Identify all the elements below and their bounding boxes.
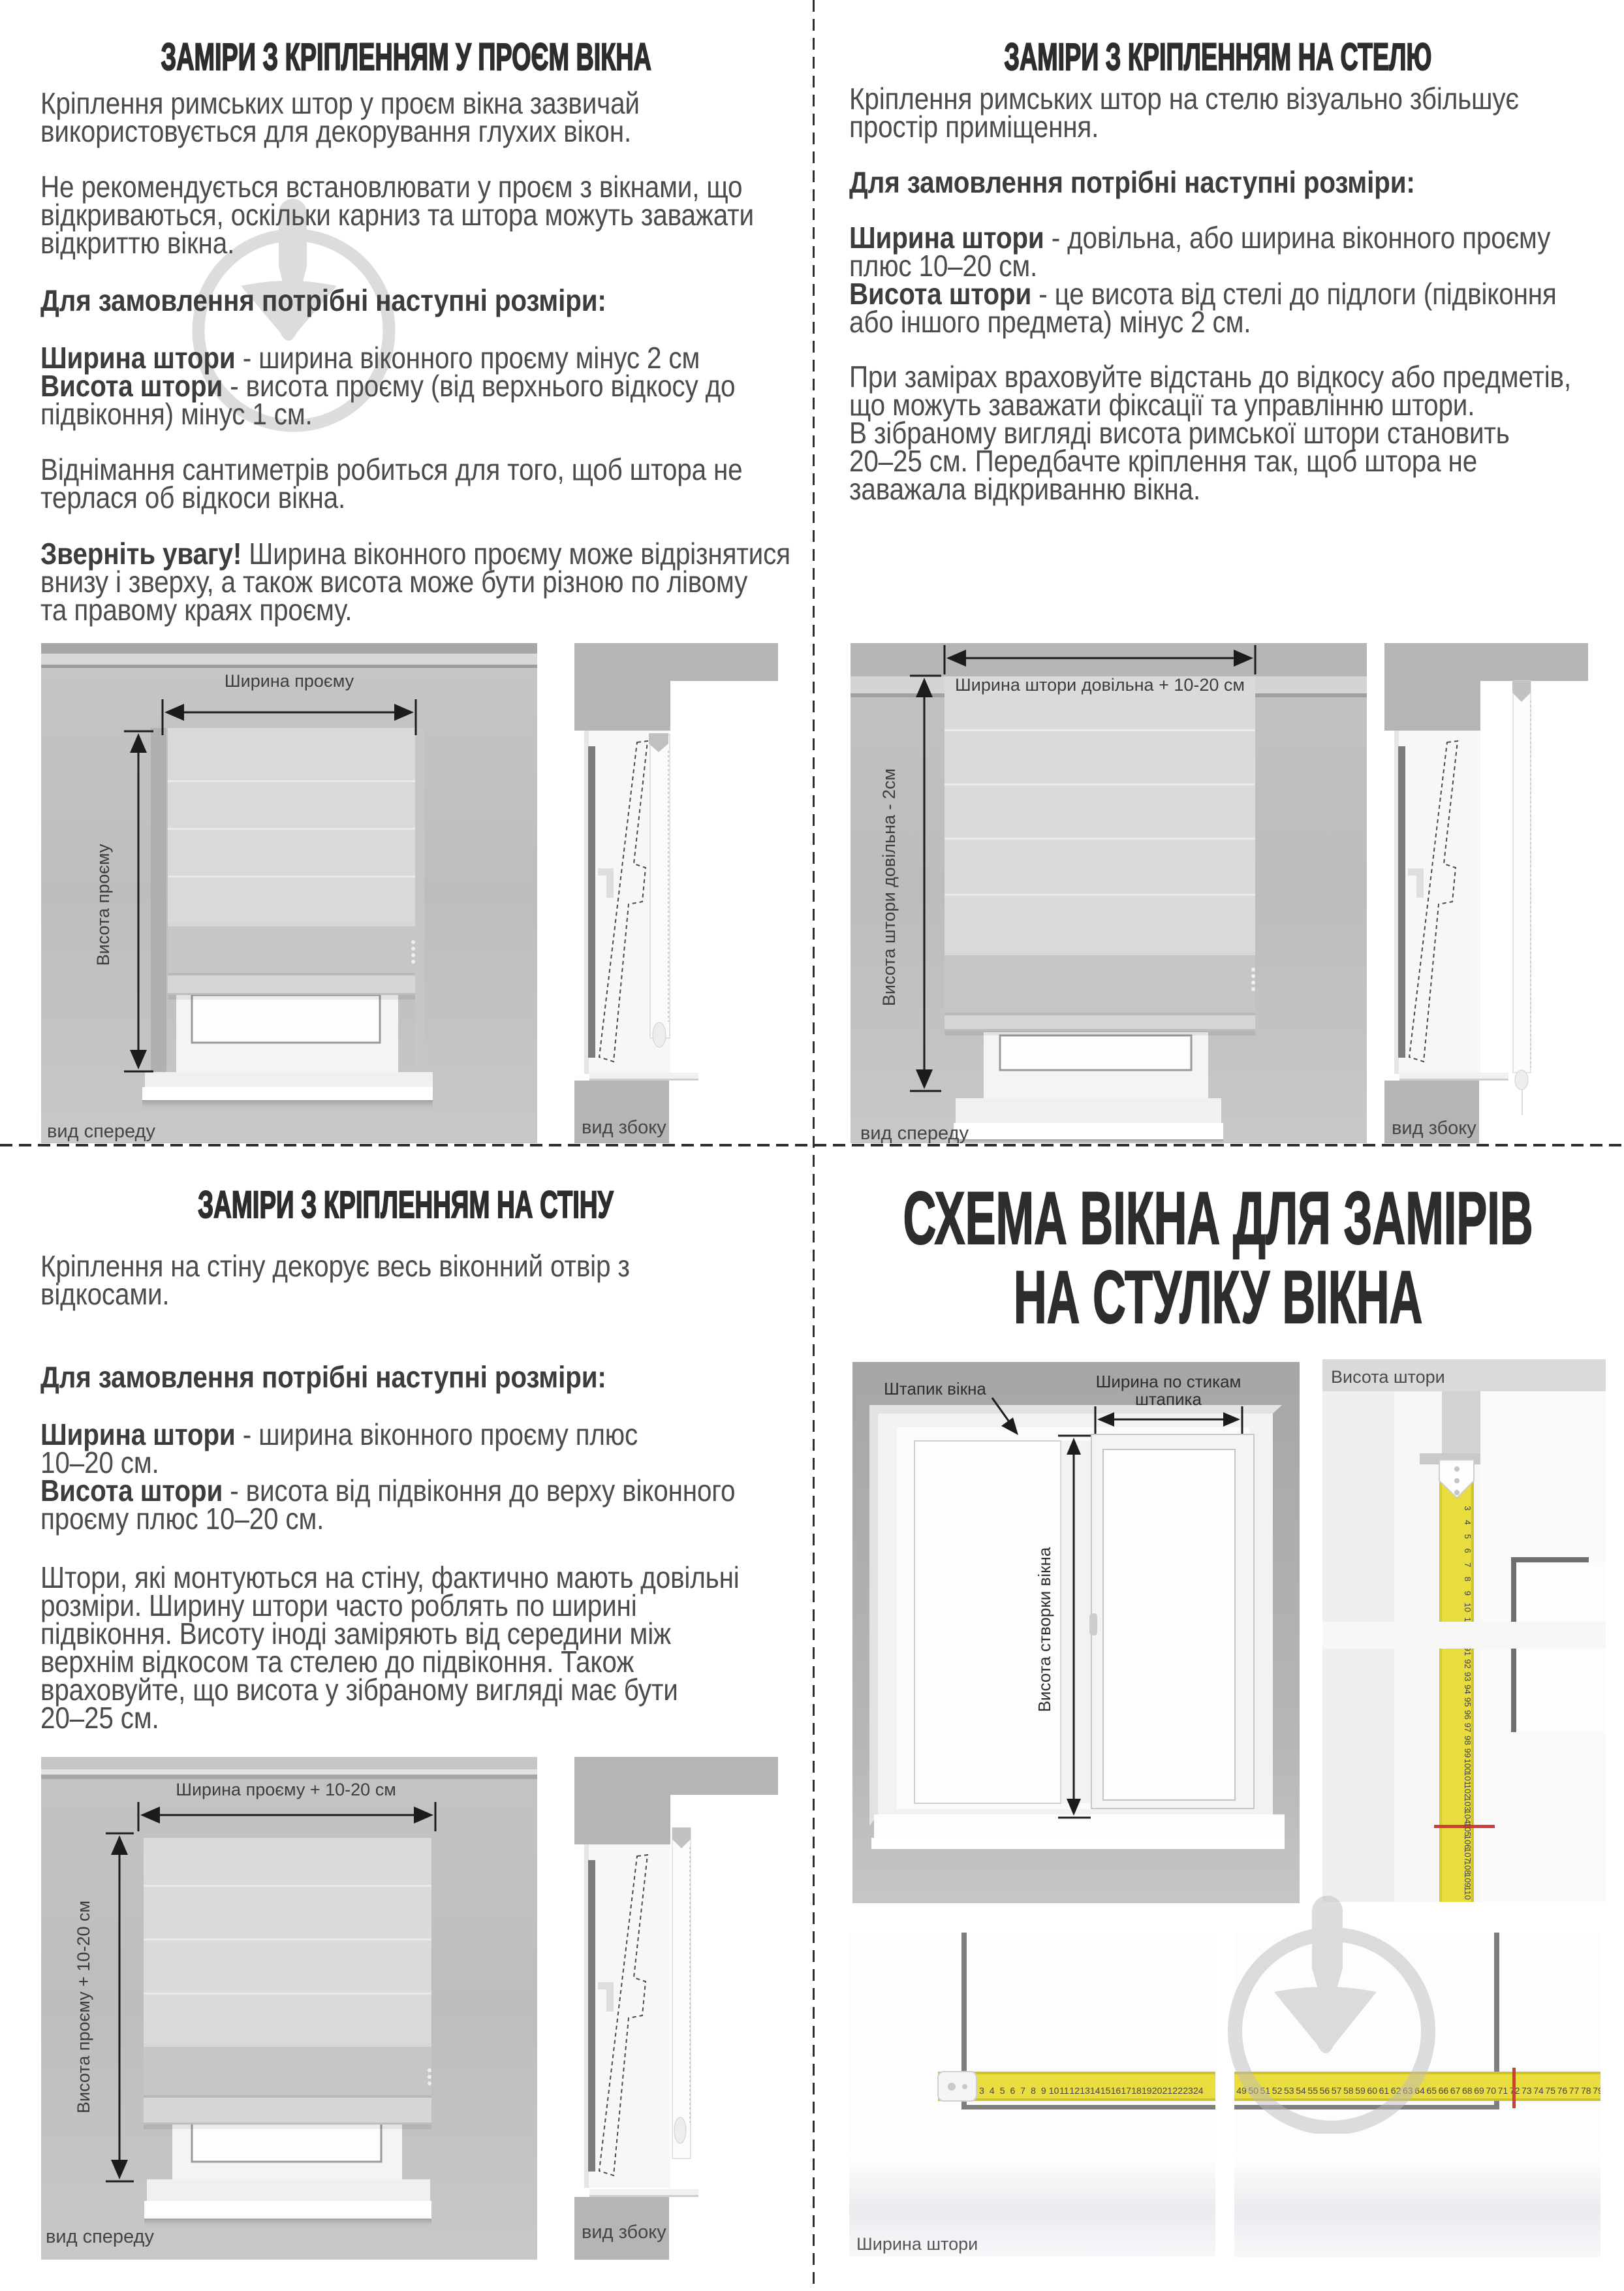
svg-text:75: 75 xyxy=(1545,2085,1555,2096)
svg-text:101: 101 xyxy=(1463,1771,1473,1786)
svg-text:6: 6 xyxy=(1010,2085,1016,2096)
svg-text:9: 9 xyxy=(1463,1591,1473,1596)
svg-text:92: 92 xyxy=(1463,1659,1473,1668)
svg-text:Ширина штори довільна + 10-20: Ширина штори довільна + 10-20 см xyxy=(955,675,1245,695)
svg-text:108: 108 xyxy=(1463,1861,1473,1875)
svg-text:76: 76 xyxy=(1557,2085,1568,2096)
svg-text:10: 10 xyxy=(1049,2085,1059,2096)
svg-text:73: 73 xyxy=(1522,2085,1532,2096)
svg-text:Ширина по стикам: Ширина по стикам xyxy=(1096,1372,1241,1391)
svg-text:16: 16 xyxy=(1111,2085,1121,2096)
svg-text:24: 24 xyxy=(1193,2085,1204,2096)
svg-text:109: 109 xyxy=(1463,1873,1473,1888)
svg-text:3: 3 xyxy=(979,2085,984,2096)
svg-text:22: 22 xyxy=(1172,2085,1183,2096)
svg-text:Висота проєму + 10-20 см: Висота проєму + 10-20 см xyxy=(74,1901,93,2113)
svg-text:вид збоку: вид збоку xyxy=(582,2222,666,2243)
svg-text:вид збоку: вид збоку xyxy=(582,1117,666,1138)
svg-text:68: 68 xyxy=(1462,2085,1473,2096)
svg-text:вид спереду: вид спереду xyxy=(46,2226,154,2247)
svg-text:20: 20 xyxy=(1152,2085,1163,2096)
svg-text:4: 4 xyxy=(990,2085,995,2096)
svg-text:4: 4 xyxy=(1463,1520,1473,1525)
svg-text:15: 15 xyxy=(1101,2085,1111,2096)
svg-text:98: 98 xyxy=(1463,1735,1473,1745)
svg-text:6: 6 xyxy=(1463,1548,1473,1553)
svg-text:3: 3 xyxy=(1463,1506,1473,1510)
svg-text:7: 7 xyxy=(1020,2085,1025,2096)
svg-text:Штапик вікна: Штапик вікна xyxy=(884,1379,986,1398)
svg-text:штапика: штапика xyxy=(1135,1389,1202,1409)
svg-text:10: 10 xyxy=(1463,1603,1473,1612)
svg-text:105: 105 xyxy=(1463,1822,1473,1837)
svg-text:69: 69 xyxy=(1474,2085,1484,2096)
svg-text:107: 107 xyxy=(1463,1848,1473,1862)
svg-text:18: 18 xyxy=(1131,2085,1142,2096)
svg-text:103: 103 xyxy=(1463,1797,1473,1811)
svg-text:70: 70 xyxy=(1486,2085,1496,2096)
svg-text:12: 12 xyxy=(1069,2085,1080,2096)
svg-text:17: 17 xyxy=(1121,2085,1131,2096)
svg-text:100: 100 xyxy=(1463,1759,1473,1773)
svg-text:Висота штори: Висота штори xyxy=(1331,1367,1445,1387)
svg-text:23: 23 xyxy=(1183,2085,1193,2096)
svg-text:102: 102 xyxy=(1463,1784,1473,1799)
svg-text:71: 71 xyxy=(1498,2085,1508,2096)
svg-text:11: 11 xyxy=(1059,2085,1069,2096)
svg-text:106: 106 xyxy=(1463,1835,1473,1850)
svg-text:21: 21 xyxy=(1163,2085,1173,2096)
svg-text:8: 8 xyxy=(1031,2085,1036,2096)
svg-text:78: 78 xyxy=(1581,2085,1591,2096)
svg-text:97: 97 xyxy=(1463,1723,1473,1732)
svg-text:Висота штори довільна - 2см: Висота штори довільна - 2см xyxy=(879,768,899,1006)
svg-text:вид спереду: вид спереду xyxy=(860,1123,969,1143)
svg-text:8: 8 xyxy=(1463,1577,1473,1581)
svg-text:99: 99 xyxy=(1463,1748,1473,1758)
svg-text:Висота проєму: Висота проєму xyxy=(93,844,113,966)
svg-text:вид спереду: вид спереду xyxy=(47,1121,155,1142)
svg-text:Ширина проєму + 10-20 см: Ширина проєму + 10-20 см xyxy=(176,1780,396,1799)
svg-text:104: 104 xyxy=(1463,1810,1473,1824)
svg-text:5: 5 xyxy=(1463,1534,1473,1539)
svg-text:96: 96 xyxy=(1463,1710,1473,1719)
svg-text:93: 93 xyxy=(1463,1672,1473,1681)
svg-text:74: 74 xyxy=(1533,2085,1544,2096)
svg-text:19: 19 xyxy=(1142,2085,1152,2096)
svg-text:7: 7 xyxy=(1463,1562,1473,1567)
svg-text:Ширина штори: Ширина штори xyxy=(856,2234,978,2254)
svg-text:79: 79 xyxy=(1593,2085,1601,2096)
svg-text:вид збоку: вид збоку xyxy=(1392,1118,1476,1139)
svg-text:Ширина проєму: Ширина проєму xyxy=(225,671,354,691)
svg-text:77: 77 xyxy=(1569,2085,1580,2096)
svg-text:94: 94 xyxy=(1463,1684,1473,1694)
svg-text:13: 13 xyxy=(1080,2085,1090,2096)
svg-text:110: 110 xyxy=(1463,1886,1473,1900)
svg-text:9: 9 xyxy=(1041,2085,1046,2096)
svg-text:5: 5 xyxy=(1000,2085,1005,2096)
svg-text:Висота створки вікна: Висота створки вікна xyxy=(1035,1547,1054,1712)
svg-text:14: 14 xyxy=(1090,2085,1101,2096)
svg-text:95: 95 xyxy=(1463,1698,1473,1707)
